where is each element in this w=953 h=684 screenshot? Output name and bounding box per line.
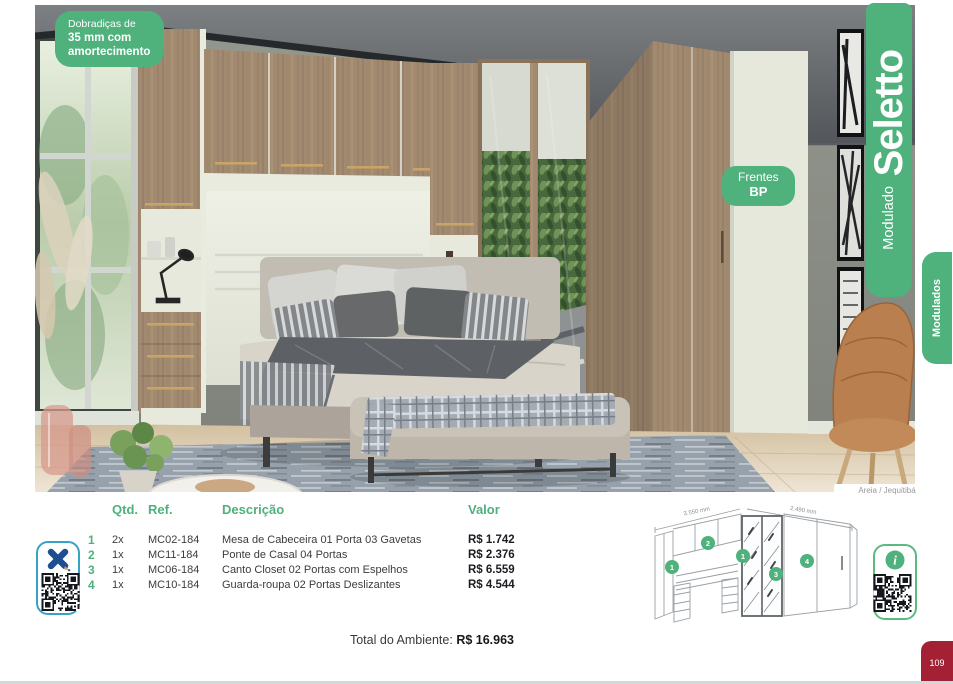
row-price: R$ 2.376 — [468, 549, 580, 562]
bench — [350, 393, 630, 487]
info-qr-box: i — [873, 544, 917, 620]
hinges-badge-line2: 35 mm com — [68, 31, 150, 45]
row-qty: 1x — [112, 579, 148, 592]
crossed-pencils-icon — [38, 546, 78, 572]
dimension-right: 2.490 mm — [790, 506, 817, 516]
spec-table: Qtd. Ref. Descrição Valor 1 2x MC02-184 … — [88, 502, 580, 591]
hinges-badge-line1: Dobradiças de — [68, 18, 150, 31]
section-tab-modulados[interactable]: Modulados — [922, 252, 952, 364]
qr-code-right — [873, 574, 912, 612]
row-qty: 2x — [112, 534, 148, 547]
row-desc: Mesa de Cabeceira 01 Porta 03 Gavetas — [222, 534, 468, 547]
row-ref: MC02-184 — [148, 534, 222, 547]
customize-qr-box — [36, 541, 80, 615]
row-number: 3 — [88, 564, 112, 577]
total-label: Total do Ambiente: — [350, 633, 453, 647]
environment-total: Total do Ambiente: R$ 16.963 — [282, 633, 582, 647]
collection-banner: Seletto Modulado — [866, 3, 912, 297]
corner-wardrobe — [588, 41, 730, 443]
row-desc: Canto Closet 02 Portas com Espelhos — [222, 564, 468, 577]
row-price: R$ 1.742 — [468, 534, 580, 547]
section-tab-label: Modulados — [931, 279, 943, 337]
overhead-cabinets — [204, 49, 465, 195]
row-qty: 1x — [112, 549, 148, 562]
page-number-tab: 109 — [921, 641, 953, 684]
bedroom-scene — [35, 5, 915, 492]
hinges-badge-line3: amortecimento — [68, 45, 150, 59]
left-wardrobe-column — [138, 29, 206, 426]
bedroom-photo — [35, 5, 915, 492]
catalog-page: { "page": { "number": "109" }, "photo": … — [0, 0, 953, 684]
total-value: R$ 16.963 — [456, 633, 514, 647]
header-ref: Ref. — [148, 502, 222, 531]
dimension-left: 3.550 mm — [683, 507, 710, 518]
wardrobe-side-panel — [730, 51, 808, 447]
hinges-badge: Dobradiças de 35 mm com amortecimento — [55, 11, 164, 67]
header-desc: Descrição — [222, 502, 468, 531]
row-ref: MC11-184 — [148, 549, 222, 562]
layout-diagram: 3.550 mm 2.490 mm 1 2 1 3 4 — [645, 496, 860, 629]
row-desc: Ponte de Casal 04 Portas — [222, 549, 468, 562]
collection-title: Seletto — [867, 50, 912, 176]
row-qty: 1x — [112, 564, 148, 577]
row-desc: Guarda-roupa 02 Portas Deslizantes — [222, 579, 468, 592]
row-price: R$ 6.559 — [468, 564, 580, 577]
row-ref: MC06-184 — [148, 564, 222, 577]
diagram-marker: 2 — [706, 539, 710, 548]
collection-subtitle: Modulado — [881, 186, 897, 250]
fronts-badge: Frentes BP — [722, 166, 795, 206]
row-ref: MC10-184 — [148, 579, 222, 592]
row-number: 2 — [88, 549, 112, 562]
row-number: 1 — [88, 534, 112, 547]
header-qtd: Qtd. — [112, 502, 148, 531]
row-number: 4 — [88, 579, 112, 592]
row-price: R$ 4.544 — [468, 579, 580, 592]
diagram-marker: 3 — [774, 570, 778, 579]
info-icon: i — [875, 549, 915, 571]
diagram-marker: 1 — [670, 563, 674, 572]
fronts-badge-line1: Frentes — [738, 170, 779, 184]
fronts-badge-line2: BP — [738, 184, 779, 200]
svg-text:i: i — [893, 553, 897, 568]
header-valor: Valor — [468, 502, 580, 531]
page-number: 109 — [929, 658, 944, 668]
qr-code-left — [40, 573, 81, 611]
diagram-marker: 1 — [741, 552, 745, 561]
